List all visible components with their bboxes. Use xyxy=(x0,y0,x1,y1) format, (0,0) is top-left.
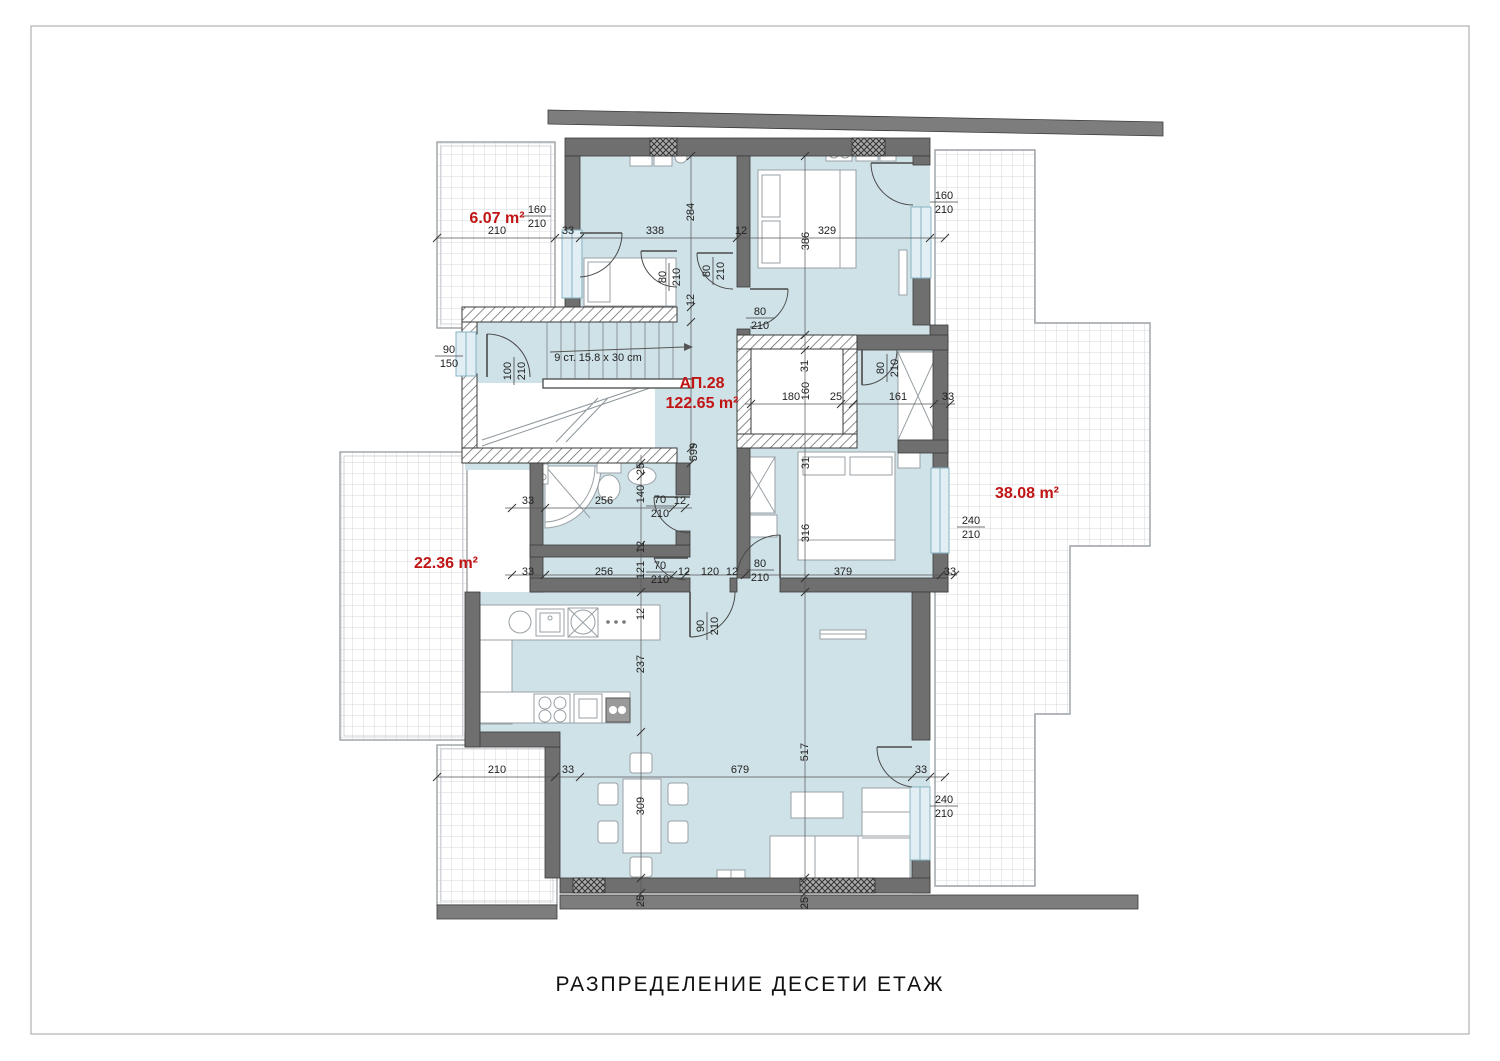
svg-text:210: 210 xyxy=(751,320,769,332)
chair xyxy=(668,783,688,805)
svg-text:80: 80 xyxy=(754,306,766,318)
dim-label: 12 xyxy=(635,541,647,553)
drawing-title: РАЗПРЕДЕЛЕНИЕ ДЕСЕТИ ЕТАЖ xyxy=(556,973,945,996)
svg-text:210: 210 xyxy=(962,529,980,541)
dim-label: 679 xyxy=(731,764,749,776)
dim-label: 33 xyxy=(942,391,954,403)
chair xyxy=(598,783,618,805)
nightstand xyxy=(898,452,920,468)
svg-text:240: 240 xyxy=(935,794,953,806)
svg-text:210: 210 xyxy=(528,218,546,230)
dim-label: 599 xyxy=(688,443,700,461)
svg-text:80: 80 xyxy=(754,558,766,570)
toilet-tank xyxy=(597,463,621,473)
svg-text:80: 80 xyxy=(701,265,713,277)
dim-label: 33 xyxy=(522,566,534,578)
dim-label: 210 xyxy=(488,764,506,776)
terrace-left xyxy=(340,452,467,740)
pillow xyxy=(850,457,892,475)
top-parapet xyxy=(548,110,1163,136)
stair-handrail xyxy=(543,379,693,388)
dim-label: 31 xyxy=(799,360,811,372)
dim-label: 33 xyxy=(562,225,574,237)
svg-text:210: 210 xyxy=(751,572,769,584)
dim-label: 284 xyxy=(685,203,697,221)
dim-label: 25 xyxy=(635,895,647,907)
dim-label: 338 xyxy=(646,225,664,237)
svg-text:240: 240 xyxy=(962,515,980,527)
dim-label: 140 xyxy=(635,485,647,503)
svg-text:210: 210 xyxy=(516,362,528,380)
svg-text:80: 80 xyxy=(657,271,669,283)
dim-label: 12 xyxy=(674,495,686,507)
apartment-area: 122.65 m² xyxy=(666,395,739,412)
dim-label: 12 xyxy=(685,294,697,306)
dim-label: 180 xyxy=(782,391,800,403)
svg-text:160: 160 xyxy=(528,204,546,216)
coffee-table xyxy=(791,792,843,818)
dim-label: 12 xyxy=(635,608,647,620)
dim-label: 316 xyxy=(800,524,812,542)
dim-label: 25 xyxy=(830,391,842,403)
svg-text:70: 70 xyxy=(654,560,666,572)
elevator-wall xyxy=(737,335,857,349)
dim-label: 33 xyxy=(915,764,927,776)
dim-label: 33 xyxy=(522,495,534,507)
svg-text:70: 70 xyxy=(654,494,666,506)
room-area-label: 38.08 m² xyxy=(995,485,1059,502)
dim-label: 379 xyxy=(834,566,852,578)
dim-label: 161 xyxy=(889,391,907,403)
pillow xyxy=(762,221,780,263)
svg-text:160: 160 xyxy=(935,190,953,202)
dim-label: 120 xyxy=(701,566,719,578)
dim-label: 33 xyxy=(944,566,956,578)
room-area-label: 6.07 m² xyxy=(469,210,524,227)
dim-label: 386 xyxy=(800,232,812,250)
dim-label: 160 xyxy=(800,382,812,400)
svg-text:100: 100 xyxy=(502,362,514,380)
dim-label: 309 xyxy=(635,797,647,815)
svg-text:210: 210 xyxy=(935,204,953,216)
svg-text:80: 80 xyxy=(875,362,887,374)
svg-text:210: 210 xyxy=(889,359,901,377)
dim-label: 12 xyxy=(735,225,747,237)
svg-text:150: 150 xyxy=(440,358,458,370)
dim-label: 329 xyxy=(818,225,836,237)
chair xyxy=(598,821,618,843)
svg-text:210: 210 xyxy=(709,617,721,635)
desk xyxy=(750,515,777,537)
dim-label: 25 xyxy=(635,463,647,475)
radiator xyxy=(899,250,907,295)
svg-text:210: 210 xyxy=(935,808,953,820)
pillow xyxy=(762,175,780,217)
stair-note: 9 ст. 15.8 x 30 cm xyxy=(554,352,642,364)
bottom-left-parapet xyxy=(437,905,557,919)
svg-text:210: 210 xyxy=(651,508,669,520)
svg-text:210: 210 xyxy=(671,268,683,286)
dim-label: 12 xyxy=(678,566,690,578)
pillow xyxy=(588,262,610,302)
svg-text:210: 210 xyxy=(651,574,669,586)
dim-label: 256 xyxy=(595,566,613,578)
svg-text:90: 90 xyxy=(443,344,455,356)
svg-text:210: 210 xyxy=(715,262,727,280)
floor-plan-sheet: 9 ст. 15.8 x 30 cm АП.28 122.65 m² 21033… xyxy=(0,0,1500,1061)
dim-label: 121 xyxy=(635,561,647,579)
floor-plan-drawing: 9 ст. 15.8 x 30 cm АП.28 122.65 m² 21033… xyxy=(0,0,1500,1061)
dim-label: 517 xyxy=(799,743,811,761)
dim-label: 256 xyxy=(595,495,613,507)
dim-label: 33 xyxy=(562,764,574,776)
dim-label: 12 xyxy=(726,566,738,578)
chair xyxy=(668,821,688,843)
room-area-label: 22.36 m² xyxy=(414,555,478,572)
dim-label: 237 xyxy=(635,655,647,673)
svg-text:90: 90 xyxy=(695,620,707,632)
dim-label: 31 xyxy=(800,457,812,469)
dim-label: 25 xyxy=(799,897,811,909)
apartment-number: АП.28 xyxy=(679,375,724,392)
